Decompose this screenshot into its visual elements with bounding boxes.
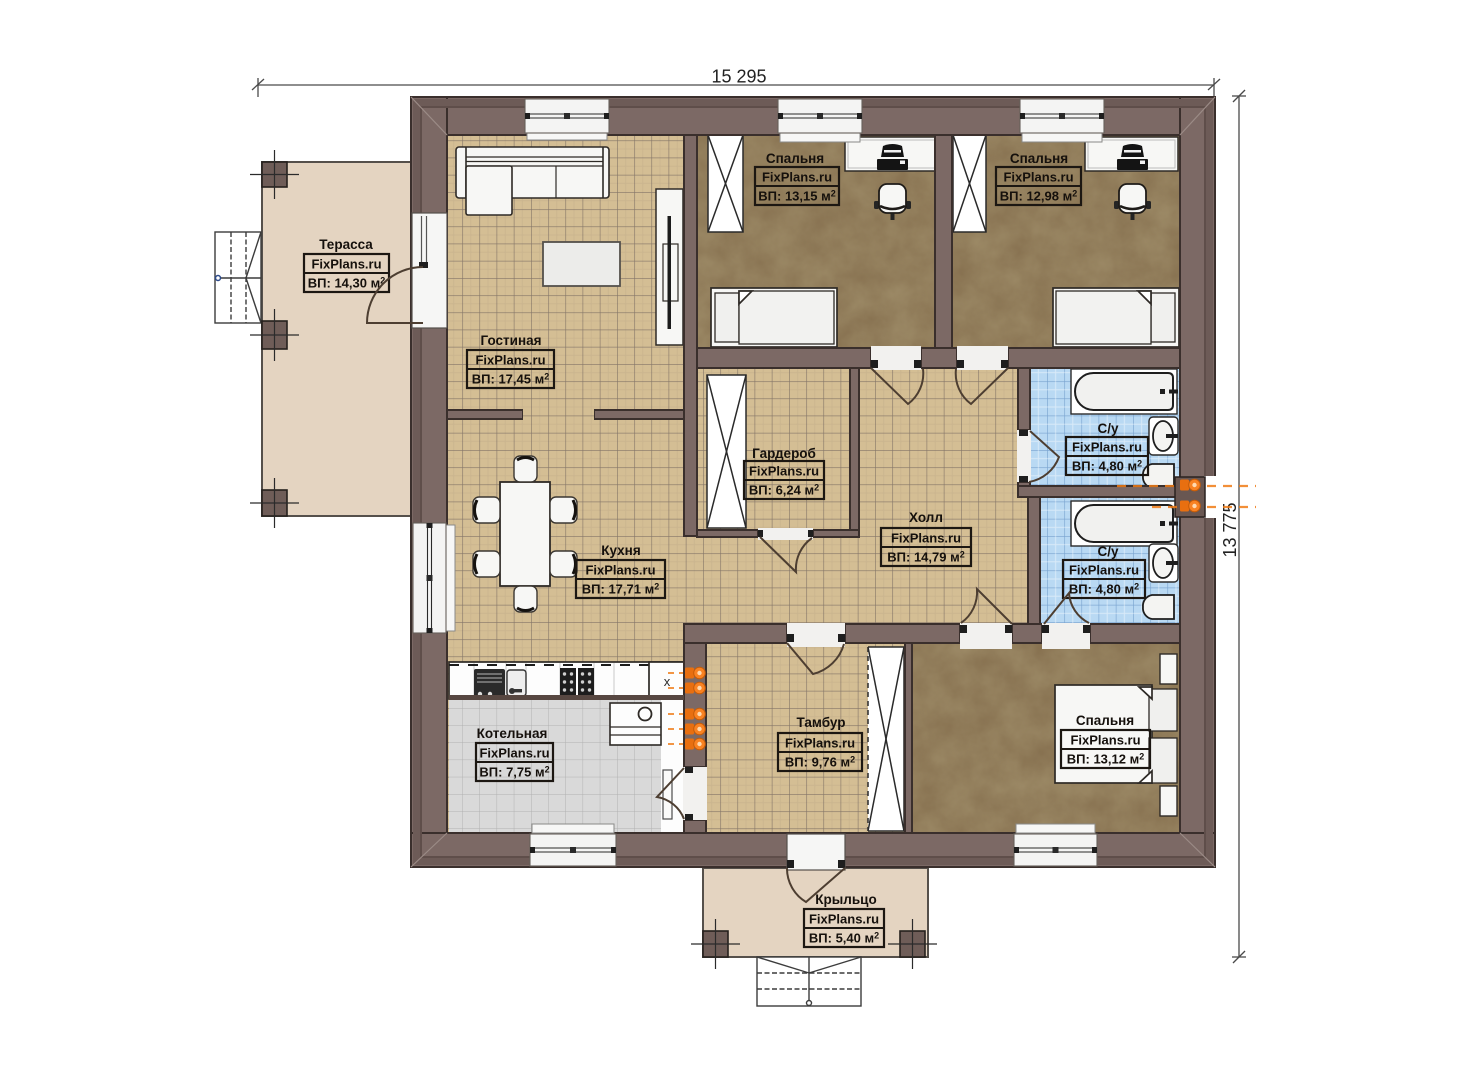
svg-text:FixPlans.ru: FixPlans.ru [1072,440,1142,455]
svg-text:ВП: 13,15 м2: ВП: 13,15 м2 [758,189,835,204]
svg-text:ВП: 12,98 м2: ВП: 12,98 м2 [1000,189,1077,204]
svg-text:ВП: 14,79 м2: ВП: 14,79 м2 [887,550,964,565]
svg-text:Тамбур: Тамбур [797,715,846,730]
svg-text:FixPlans.ru: FixPlans.ru [809,912,879,927]
svg-text:13 775: 13 775 [1220,502,1240,557]
svg-text:FixPlans.ru: FixPlans.ru [785,736,855,751]
svg-text:FixPlans.ru: FixPlans.ru [475,353,545,368]
svg-text:Спальня: Спальня [766,151,824,166]
svg-text:С/у: С/у [1097,421,1119,436]
svg-text:Терасса: Терасса [319,237,373,252]
svg-text:ВП: 9,76 м2: ВП: 9,76 м2 [785,755,855,770]
svg-text:FixPlans.ru: FixPlans.ru [311,257,381,272]
svg-text:Спальня: Спальня [1076,713,1134,728]
svg-text:ВП: 17,45 м2: ВП: 17,45 м2 [472,372,549,387]
svg-text:Кухня: Кухня [601,543,640,558]
svg-text:Крыльцо: Крыльцо [815,892,876,907]
svg-text:Спальня: Спальня [1010,151,1068,166]
svg-text:С/у: С/у [1097,544,1119,559]
svg-text:FixPlans.ru: FixPlans.ru [891,531,961,546]
svg-text:FixPlans.ru: FixPlans.ru [585,563,655,578]
svg-text:x: x [664,674,671,689]
svg-text:ВП: 17,71 м2: ВП: 17,71 м2 [582,582,659,597]
svg-text:ВП: 4,80 м2: ВП: 4,80 м2 [1072,459,1142,474]
svg-text:Котельная: Котельная [477,726,548,741]
svg-text:ВП: 13,12 м2: ВП: 13,12 м2 [1067,752,1144,767]
svg-text:ВП: 5,40 м2: ВП: 5,40 м2 [809,931,879,946]
svg-text:Гардероб: Гардероб [752,446,816,461]
svg-text:ВП: 14,30 м2: ВП: 14,30 м2 [308,276,385,291]
svg-text:FixPlans.ru: FixPlans.ru [1070,733,1140,748]
svg-text:ВП: 4,80 м2: ВП: 4,80 м2 [1069,582,1139,597]
svg-text:15 295: 15 295 [711,67,766,87]
svg-text:FixPlans.ru: FixPlans.ru [749,464,819,479]
svg-text:ВП: 6,24 м2: ВП: 6,24 м2 [749,483,819,498]
svg-text:FixPlans.ru: FixPlans.ru [479,746,549,761]
svg-text:FixPlans.ru: FixPlans.ru [1069,563,1139,578]
svg-text:ВП: 7,75 м2: ВП: 7,75 м2 [479,765,549,780]
svg-text:FixPlans.ru: FixPlans.ru [762,170,832,185]
svg-text:Холл: Холл [909,510,943,525]
svg-text:FixPlans.ru: FixPlans.ru [1003,170,1073,185]
svg-text:Гостиная: Гостиная [480,333,541,348]
